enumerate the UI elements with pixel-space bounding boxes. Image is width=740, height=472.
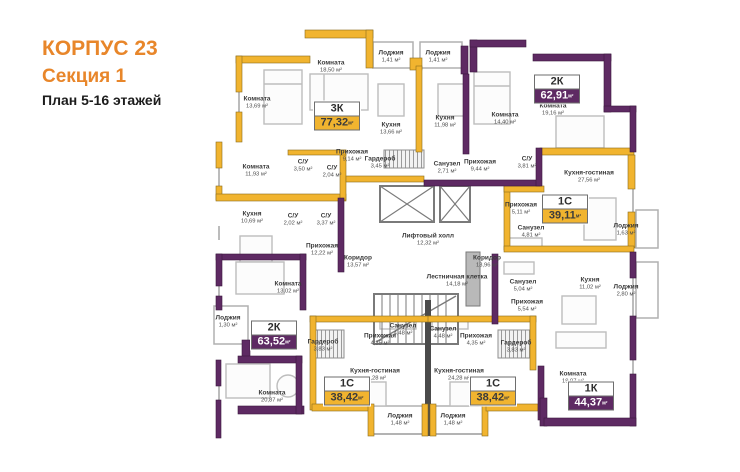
room-name: С/У [294, 159, 313, 167]
room-name: С/У [323, 165, 342, 173]
apartment-area: 39,11м² [543, 210, 587, 223]
room-label: Комната20,87 м² [259, 390, 286, 405]
room-name: Санузел [518, 225, 545, 233]
room-area: 3,81 м² [518, 163, 537, 170]
room-label: Комната14,40 м² [492, 112, 519, 127]
room-label: Комната11,93 м² [243, 164, 270, 179]
room-area: 9,14 м² [336, 156, 368, 163]
room-label: Прихожая4,35 м² [364, 333, 396, 348]
room-area: 18,50 м² [318, 67, 345, 74]
room-area: 2,71 м² [434, 168, 461, 175]
room-label: Прихожая9,14 м² [336, 149, 368, 164]
room-name: Прихожая [364, 333, 396, 341]
room-label: Лоджия1,41 м² [426, 50, 451, 65]
apartment-type: 1С [543, 196, 587, 210]
apartment-badge: 1С38,42м² [324, 377, 370, 406]
apartment-area: 62,91м² [535, 90, 579, 103]
room-label: С/У2,04 м² [323, 165, 342, 180]
room-area: 3,50 м² [294, 166, 313, 173]
room-name: Коридор [344, 255, 372, 263]
room-label: Коридор13,96 м² [473, 255, 501, 270]
room-label: Санузел2,71 м² [434, 161, 461, 176]
room-area: 14,40 м² [492, 119, 519, 126]
room-label: Лифтовый холл12,32 м² [402, 233, 454, 248]
room-name: Кухня [434, 115, 456, 123]
room-area: 10,69 м² [241, 218, 263, 225]
room-name: Прихожая [336, 149, 368, 157]
room-label: Кухня11,02 м² [579, 277, 601, 292]
apartment-area: 38,42м² [325, 392, 369, 405]
room-name: Комната [259, 390, 286, 398]
room-label: Санузел4,81 м² [518, 225, 545, 240]
apartment-badge: 3К77,32м² [314, 102, 360, 131]
room-name: Кухня [579, 277, 601, 285]
room-name: Санузел [390, 323, 417, 331]
room-name: Лоджия [614, 284, 639, 292]
room-area: 3,83 м² [308, 346, 339, 353]
room-area: 9,44 м² [464, 166, 496, 173]
floor-plan: Комната13,69 м²Комната18,50 м²Лоджия1,41… [0, 0, 740, 472]
room-label: Прихожая5,11 м² [505, 202, 537, 217]
apartment-type: 1С [325, 378, 369, 392]
room-area: 2,80 м² [614, 291, 639, 298]
room-area: 3,83 м² [501, 347, 532, 354]
apartment-badge: 1С38,42м² [470, 377, 516, 406]
area-unit: м² [358, 396, 363, 402]
room-name: Гардероб [501, 340, 532, 348]
room-label: Гардероб3,83 м² [501, 340, 532, 355]
room-area: 13,96 м² [473, 262, 501, 269]
room-area: 11,02 м² [579, 284, 601, 291]
room-name: Коридор [473, 255, 501, 263]
room-name: С/У [518, 156, 537, 164]
room-label: С/У3,50 м² [294, 159, 313, 174]
room-name: Комната [560, 371, 587, 379]
room-name: Кухня [241, 211, 263, 219]
room-area: 5,04 м² [510, 286, 537, 293]
room-area: 27,56 м² [564, 177, 614, 184]
room-name: Лоджия [614, 223, 639, 231]
room-area: 1,48 м² [388, 420, 413, 427]
apartment-area: 63,52м² [252, 336, 296, 349]
room-area: 11,93 м² [243, 171, 270, 178]
room-name: Прихожая [505, 202, 537, 210]
room-label: Комната18,50 м² [318, 60, 345, 75]
apartment-type: 3К [315, 103, 359, 117]
apartment-type: 2К [252, 322, 296, 336]
room-area: 13,69 м² [244, 103, 271, 110]
room-label: Лоджия1,48 м² [388, 413, 413, 428]
room-area: 13,57 м² [344, 262, 372, 269]
room-name: Санузел [434, 161, 461, 169]
apartment-type: 1К [569, 383, 613, 397]
room-name: Комната [243, 164, 270, 172]
room-label: С/У3,81 м² [518, 156, 537, 171]
room-label: Лоджия1,30 м² [216, 315, 241, 330]
room-label: Гардероб3,45 м² [365, 156, 396, 171]
room-label: Прихожая12,22 м² [306, 243, 338, 258]
room-name: Кухня-гостиная [564, 170, 614, 178]
room-name: Санузел [510, 279, 537, 287]
room-area: 1,41 м² [379, 57, 404, 64]
room-area: 1,48 м² [441, 420, 466, 427]
room-name: Комната [540, 103, 567, 111]
room-name: Комната [275, 281, 302, 289]
room-label: Комната13,02 м² [275, 281, 302, 296]
room-area: 3,37 м² [317, 220, 336, 227]
room-label: Лоджия1,41 м² [379, 50, 404, 65]
room-name: Гардероб [365, 156, 396, 164]
room-label: Прихожая5,54 м² [511, 299, 543, 314]
room-label: Коридор13,57 м² [344, 255, 372, 270]
apartment-area: 38,42м² [471, 392, 515, 405]
room-area: 12,32 м² [402, 240, 454, 247]
room-area: 20,87 м² [259, 397, 286, 404]
room-area: 12,22 м² [306, 250, 338, 257]
apartment-type: 2К [535, 76, 579, 90]
room-label: Лоджия2,80 м² [614, 284, 639, 299]
elevator-shafts [380, 186, 470, 222]
room-label: Санузел4,48 м² [430, 326, 457, 341]
room-area: 4,48 м² [430, 333, 457, 340]
apartment-badge: 2К62,91м² [534, 75, 580, 104]
room-label: Комната13,69 м² [244, 96, 271, 111]
room-area: 4,35 м² [460, 340, 492, 347]
room-name: Лоджия [388, 413, 413, 421]
room-name: Комната [318, 60, 345, 68]
room-label: С/У3,37 м² [317, 213, 336, 228]
room-name: Комната [244, 96, 271, 104]
room-name: Лоджия [441, 413, 466, 421]
room-label: Прихожая9,44 м² [464, 159, 496, 174]
area-unit: м² [504, 396, 509, 402]
room-area: 13,02 м² [275, 288, 302, 295]
room-label: Санузел5,04 м² [510, 279, 537, 294]
room-name: Лоджия [216, 315, 241, 323]
room-area: 5,11 м² [505, 209, 537, 216]
room-area: 2,04 м² [323, 172, 342, 179]
area-unit: м² [348, 121, 353, 127]
room-area: 1,41 м² [426, 57, 451, 64]
room-label: С/У2,02 м² [284, 213, 303, 228]
room-name: Прихожая [511, 299, 543, 307]
room-name: Прихожая [464, 159, 496, 167]
room-name: Кухня-гостиная [434, 368, 484, 376]
room-label: Лоджия1,48 м² [441, 413, 466, 428]
room-label: Комната19,16 м² [540, 103, 567, 118]
room-name: Лоджия [426, 50, 451, 58]
apartment-area: 44,37м² [569, 397, 613, 410]
apartment-badge: 2К63,52м² [251, 321, 297, 350]
room-area: 5,54 м² [511, 306, 543, 313]
room-name: С/У [317, 213, 336, 221]
room-name: Санузел [430, 326, 457, 334]
room-name: Лестничная клетка [427, 274, 488, 282]
apartment-type: 1С [471, 378, 515, 392]
area-unit: м² [285, 340, 290, 346]
room-name: Комната [492, 112, 519, 120]
room-name: Гардероб [308, 339, 339, 347]
room-name: Лифтовый холл [402, 233, 454, 241]
room-name: Прихожая [306, 243, 338, 251]
floor-plan-page: КОРПУС 23 Секция 1 План 5-16 этажей [0, 0, 740, 472]
room-label: Кухня10,69 м² [241, 211, 263, 226]
area-unit: м² [602, 401, 607, 407]
room-label: Гардероб3,83 м² [308, 339, 339, 354]
area-unit: м² [576, 214, 581, 220]
room-label: Прихожая4,35 м² [460, 333, 492, 348]
room-name: Кухня [380, 122, 402, 130]
apartment-area: 77,32м² [315, 117, 359, 130]
room-label: Кухня-гостиная27,56 м² [564, 170, 614, 185]
room-label: Кухня11,98 м² [434, 115, 456, 130]
room-label: Лестничная клетка14,18 м² [427, 274, 488, 289]
room-name: Прихожая [460, 333, 492, 341]
room-label: Кухня13,66 м² [380, 122, 402, 137]
room-area: 14,18 м² [427, 281, 488, 288]
room-area: 11,98 м² [434, 122, 456, 129]
room-name: С/У [284, 213, 303, 221]
area-unit: м² [568, 94, 573, 100]
room-area: 1,30 м² [216, 322, 241, 329]
room-area: 1,63 м² [614, 230, 639, 237]
room-area: 3,45 м² [365, 163, 396, 170]
room-area: 4,35 м² [364, 340, 396, 347]
room-name: Кухня-гостиная [350, 368, 400, 376]
room-area: 13,66 м² [380, 129, 402, 136]
room-area: 2,02 м² [284, 220, 303, 227]
apartment-badge: 1С39,11м² [542, 195, 588, 224]
room-name: Лоджия [379, 50, 404, 58]
room-area: 4,81 м² [518, 232, 545, 239]
room-area: 19,16 м² [540, 110, 567, 117]
apartment-badge: 1К44,37м² [568, 382, 614, 411]
room-label: Лоджия1,63 м² [614, 223, 639, 238]
